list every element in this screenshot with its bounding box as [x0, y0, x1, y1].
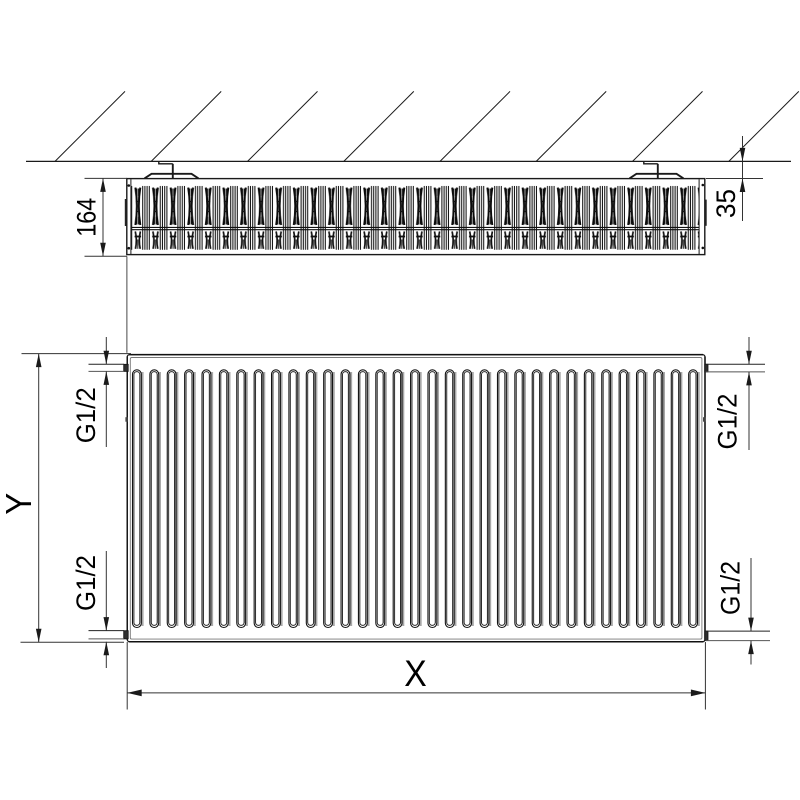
svg-text:164: 164 [72, 198, 102, 237]
svg-text:G1/2: G1/2 [71, 387, 101, 443]
svg-text:G1/2: G1/2 [713, 394, 743, 450]
svg-text:G1/2: G1/2 [716, 561, 746, 615]
svg-text:35: 35 [711, 189, 741, 218]
svg-text:Y: Y [0, 493, 39, 515]
svg-text:X: X [404, 653, 427, 694]
svg-text:G1/2: G1/2 [71, 555, 101, 611]
